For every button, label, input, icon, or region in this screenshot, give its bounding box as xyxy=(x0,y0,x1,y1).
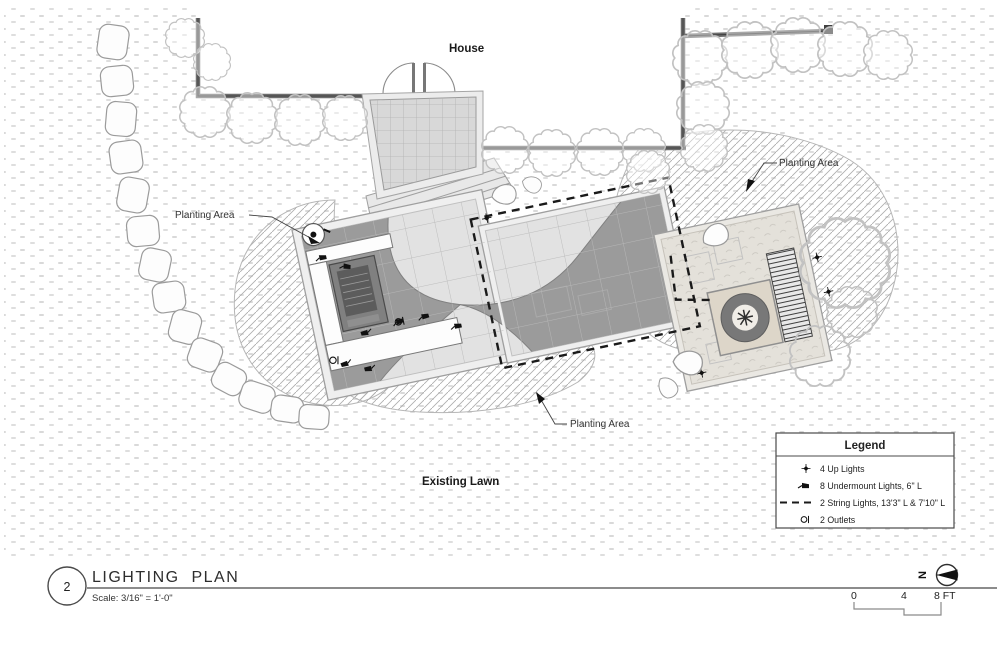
scale-bar: 0 4 8 FT xyxy=(851,590,956,615)
north-label: N xyxy=(917,571,929,579)
planting-area-label-left: Planting Area xyxy=(175,210,235,221)
scale-tick-0: 0 xyxy=(851,590,857,602)
legend-title: Legend xyxy=(845,440,886,452)
legend-item-label: 4 Up Lights xyxy=(820,464,865,474)
scale-tick-4: 4 xyxy=(901,590,907,602)
legend: Legend 4 Up Lights 8 Undermount Lights, … xyxy=(776,433,954,528)
legend-item-label: 8 Undermount Lights, 6" L xyxy=(820,481,922,491)
north-arrow: N xyxy=(917,565,958,586)
scale-note: Scale: 3/16" = 1'-0" xyxy=(92,593,173,604)
fire-pit xyxy=(707,280,783,356)
lighting-plan-page: House Planting Area Planting Area Planti… xyxy=(0,0,1000,647)
drawing-number: 2 xyxy=(64,580,71,594)
legend-item-label: 2 Outlets xyxy=(820,515,856,525)
legend-item-label: 2 String Lights, 13'3" L & 7'10" L xyxy=(820,498,945,508)
page-title: LIGHTING PLAN xyxy=(92,569,239,586)
house-label: House xyxy=(449,43,484,55)
planting-area-label-top-right: Planting Area xyxy=(779,158,839,169)
planting-area-label-bottom: Planting Area xyxy=(570,419,630,430)
existing-lawn-label: Existing Lawn xyxy=(422,476,499,488)
site-plan-drawing: House Planting Area Planting Area Planti… xyxy=(0,0,1000,647)
scale-tick-8ft: 8 FT xyxy=(934,590,956,602)
scale-bar-steps xyxy=(854,602,941,615)
